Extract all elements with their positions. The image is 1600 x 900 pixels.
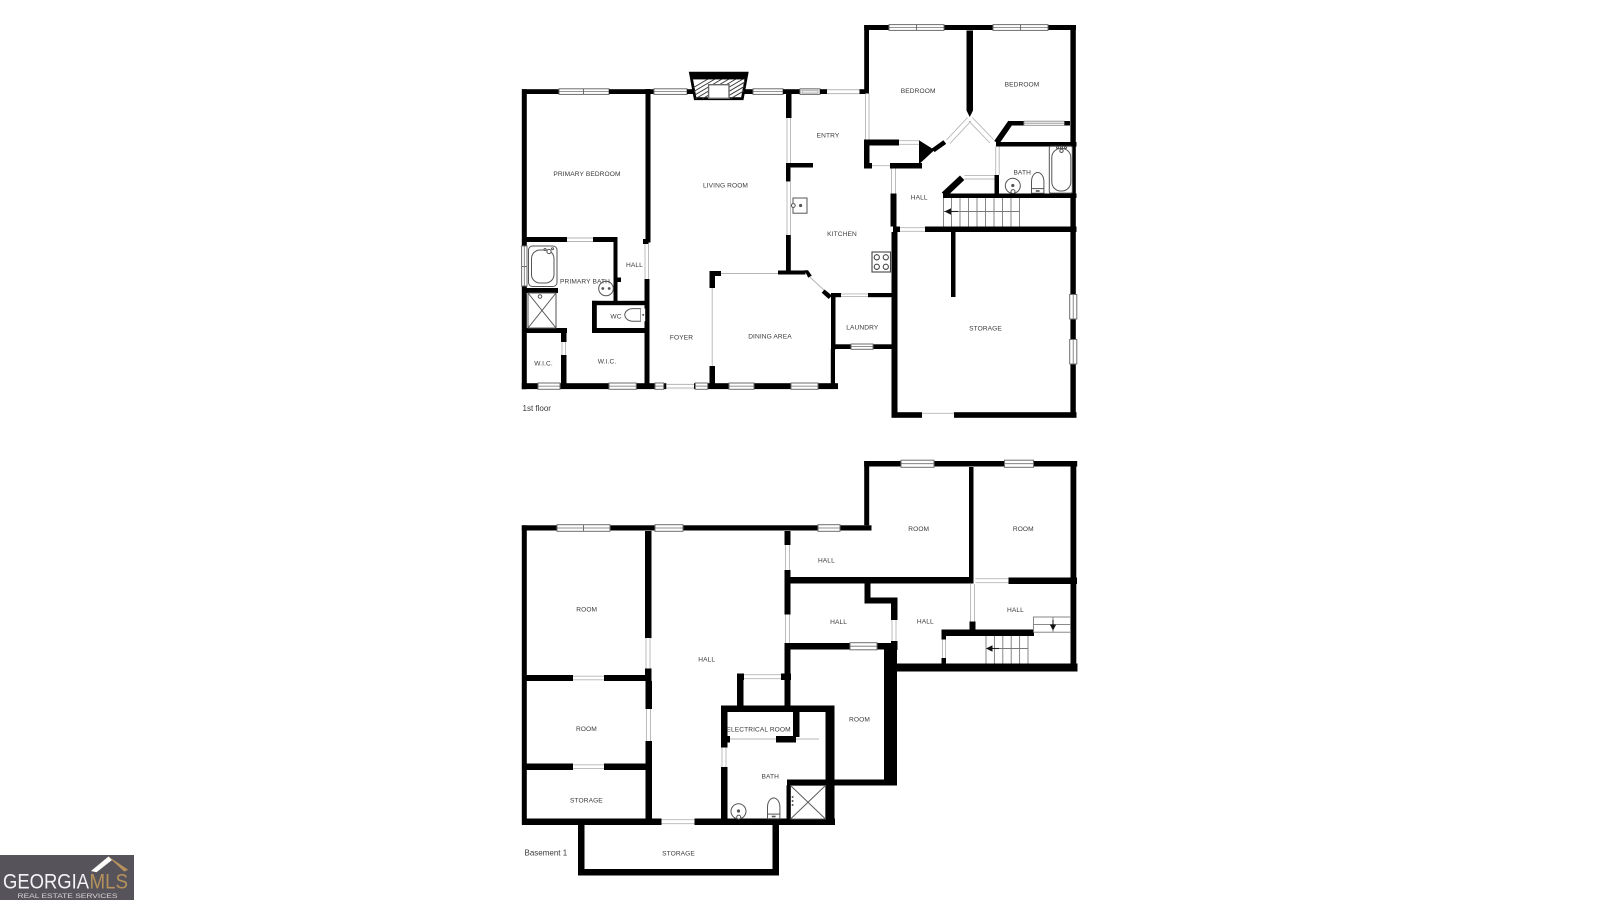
svg-text:BATH: BATH bbox=[762, 774, 780, 781]
svg-text:BEDROOM: BEDROOM bbox=[901, 88, 936, 95]
svg-text:STORAGE: STORAGE bbox=[662, 851, 695, 858]
svg-text:WC: WC bbox=[610, 314, 621, 321]
svg-text:KITCHEN: KITCHEN bbox=[827, 231, 857, 238]
svg-text:HALL: HALL bbox=[818, 558, 835, 565]
svg-text:BATH: BATH bbox=[1013, 170, 1031, 177]
svg-text:BEDROOM: BEDROOM bbox=[1005, 82, 1040, 89]
svg-text:ROOM: ROOM bbox=[1013, 526, 1034, 533]
svg-text:PRIMARY BATH: PRIMARY BATH bbox=[560, 279, 610, 286]
svg-text:PRIMARY BEDROOM: PRIMARY BEDROOM bbox=[553, 171, 620, 178]
svg-text:HALL: HALL bbox=[830, 619, 847, 626]
svg-text:STORAGE: STORAGE bbox=[570, 798, 603, 805]
svg-text:ROOM: ROOM bbox=[576, 726, 597, 733]
svg-text:ROOM: ROOM bbox=[908, 526, 929, 533]
svg-text:GEORGIA: GEORGIA bbox=[3, 870, 90, 894]
svg-text:MLS: MLS bbox=[90, 870, 129, 894]
svg-text:STORAGE: STORAGE bbox=[969, 325, 1002, 332]
svg-text:ROOM: ROOM bbox=[849, 717, 870, 724]
svg-text:HALL: HALL bbox=[698, 656, 715, 663]
svg-text:HALL: HALL bbox=[917, 619, 934, 626]
svg-text:HALL: HALL bbox=[626, 262, 643, 269]
svg-text:LIVING ROOM: LIVING ROOM bbox=[703, 183, 748, 190]
svg-text:REAL ESTATE SERVICES: REAL ESTATE SERVICES bbox=[18, 894, 118, 900]
svg-text:ENTRY: ENTRY bbox=[817, 133, 840, 140]
svg-text:HALL: HALL bbox=[1007, 607, 1024, 614]
svg-text:ELECTRICAL ROOM: ELECTRICAL ROOM bbox=[726, 727, 790, 734]
svg-text:DINING AREA: DINING AREA bbox=[748, 334, 792, 341]
svg-text:LAUNDRY: LAUNDRY bbox=[846, 324, 879, 331]
svg-text:1st floor: 1st floor bbox=[523, 404, 552, 413]
svg-text:W.I.C.: W.I.C. bbox=[534, 360, 553, 367]
svg-text:HALL: HALL bbox=[911, 195, 928, 202]
svg-text:FOYER: FOYER bbox=[670, 335, 693, 342]
svg-text:Basement 1: Basement 1 bbox=[525, 849, 568, 858]
svg-text:ROOM: ROOM bbox=[576, 606, 597, 613]
svg-text:W.I.C.: W.I.C. bbox=[598, 359, 617, 366]
